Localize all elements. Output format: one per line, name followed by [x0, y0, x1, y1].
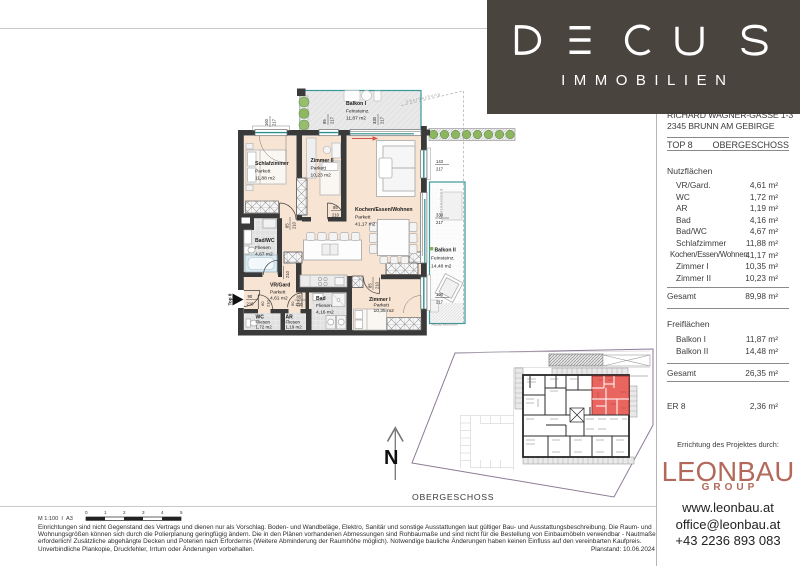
svg-text:210: 210	[375, 281, 380, 289]
svg-text:85: 85	[368, 283, 373, 288]
svg-text:Feinsteinz.: Feinsteinz.	[431, 256, 455, 262]
svg-text:95: 95	[322, 119, 327, 124]
svg-text:143: 143	[436, 159, 444, 164]
svg-text:1,19 m2: 1,19 m2	[286, 325, 303, 330]
svg-text:41,17 m2: 41,17 m2	[355, 222, 376, 228]
svg-text:330: 330	[436, 213, 444, 218]
svg-text:210: 210	[285, 270, 290, 278]
svg-text:330: 330	[372, 116, 377, 124]
svg-text:1,72 m2: 1,72 m2	[256, 325, 273, 330]
svg-text:217: 217	[436, 167, 444, 172]
svg-text:90: 90	[248, 294, 253, 299]
svg-text:217: 217	[330, 116, 335, 124]
svg-text:Balkon I: Balkon I	[346, 101, 367, 107]
svg-text:Kochen/Essen/Wohnen: Kochen/Essen/Wohnen	[355, 207, 413, 213]
svg-text:4,16 m2: 4,16 m2	[316, 310, 334, 316]
svg-text:217: 217	[272, 118, 277, 126]
svg-text:217: 217	[436, 300, 444, 305]
svg-text:Parkett: Parkett	[374, 303, 390, 309]
svg-text:60: 60	[260, 301, 265, 306]
svg-text:4,67 m2: 4,67 m2	[255, 252, 273, 258]
svg-text:Parkett: Parkett	[255, 169, 271, 175]
svg-text:VR/Gard: VR/Gard	[270, 283, 290, 289]
svg-text:217: 217	[436, 220, 444, 225]
svg-text:11,88 m2: 11,88 m2	[255, 176, 275, 182]
svg-text:210: 210	[247, 302, 255, 307]
svg-text:Schlafzimmer: Schlafzimmer	[255, 161, 289, 167]
svg-text:Aussenwohnbox: Aussenwohnbox	[432, 323, 459, 327]
svg-text:210: 210	[296, 300, 301, 307]
svg-text:Parkett: Parkett	[270, 290, 286, 296]
svg-text:210: 210	[332, 213, 340, 218]
svg-text:217: 217	[380, 116, 385, 124]
svg-text:Parkett: Parkett	[311, 166, 327, 172]
svg-text:Fliesen: Fliesen	[255, 245, 271, 251]
svg-text:Bad: Bad	[316, 296, 326, 302]
svg-text:190: 190	[436, 292, 444, 297]
svg-text:4,61 m2: 4,61 m2	[270, 296, 288, 302]
svg-text:Bad/WC: Bad/WC	[255, 238, 275, 244]
svg-text:85: 85	[278, 272, 283, 277]
svg-text:85: 85	[285, 223, 290, 228]
svg-text:11,87 m2: 11,87 m2	[346, 116, 366, 122]
svg-text:210: 210	[266, 300, 271, 307]
svg-text:OBERGESCHOSS: OBERGESCHOSS	[412, 492, 494, 502]
svg-text:85: 85	[333, 205, 338, 210]
svg-text:60: 60	[290, 301, 295, 306]
svg-text:10,23 m2: 10,23 m2	[311, 173, 332, 179]
svg-text:N: N	[384, 447, 398, 469]
svg-text:Parkett: Parkett	[355, 215, 371, 221]
svg-text:10,35 m2: 10,35 m2	[374, 308, 395, 314]
svg-text:85: 85	[297, 295, 302, 300]
svg-text:Fliesen: Fliesen	[316, 303, 332, 309]
svg-text:160: 160	[264, 118, 269, 126]
svg-text:Zimmer I: Zimmer I	[369, 297, 391, 303]
svg-text:Top 8: Top 8	[228, 293, 233, 305]
svg-text:14,48 m2: 14,48 m2	[431, 264, 452, 270]
svg-text:Balkon II: Balkon II	[435, 248, 457, 254]
svg-text:210: 210	[292, 221, 297, 229]
svg-text:Feinsteinz.: Feinsteinz.	[346, 109, 370, 115]
svg-text:Zimmer II: Zimmer II	[311, 158, 335, 164]
